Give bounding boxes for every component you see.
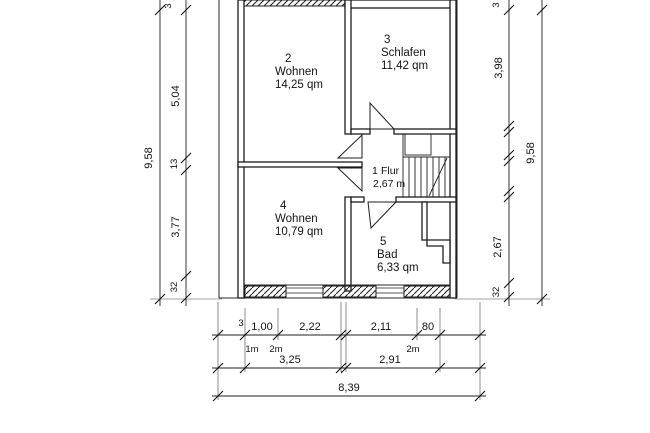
- door-swing-wohnen2: [338, 135, 362, 158]
- dim-right-segment-1: 3,98: [493, 57, 505, 78]
- exterior-wall-right: [450, 0, 456, 298]
- window-left: [286, 288, 323, 293]
- dim-left-total: 9,58: [143, 147, 155, 168]
- dim-left-segment-0: 3: [163, 3, 174, 8]
- room-area: 11,42 qm: [381, 60, 428, 72]
- wall-schlafen-flur-right: [394, 129, 456, 134]
- dim-bottom-row1-3: 2,11: [371, 321, 392, 333]
- window-right: [376, 288, 404, 293]
- wall-flur-bad-left: [351, 197, 364, 202]
- door-swing-wohnen4: [338, 168, 362, 191]
- hatched-wall-segment: [323, 286, 376, 297]
- room-area: 6,33 qm: [377, 262, 419, 274]
- dim-bottom-row2-0: 3,25: [279, 354, 300, 366]
- room-name: Bad: [377, 249, 397, 261]
- room-area: 10,79 qm: [275, 226, 323, 238]
- height-label-1m: 1m: [245, 344, 258, 355]
- dim-right-segment-2: 2,67: [492, 236, 504, 257]
- room-label-schlafen: 3 Schlafen 11,42 qm: [381, 34, 428, 72]
- dim-bottom-row1-1: 1,00: [251, 321, 272, 333]
- dimension-chain-bottom: 3 1,00 2,22 2,11 80 1m 2m 2m 3,25 2,91: [212, 302, 486, 401]
- wall-flur-bad-right: [396, 197, 456, 202]
- dimension-chain-right: 3 3,98 2,67 32 9,58: [455, 0, 550, 306]
- hatched-wall-segment: [245, 286, 286, 297]
- wall-schlafen-flur-left: [351, 129, 370, 134]
- hatched-wall-segment: [404, 286, 450, 297]
- room-label-bad: 5 Bad 6,33 qm: [377, 236, 419, 274]
- dim-left-segment-2: 13: [169, 159, 180, 170]
- stair-treads: [409, 157, 445, 197]
- room-area: 2,67 m: [373, 178, 405, 190]
- dim-left-segment-4: 32: [169, 282, 180, 293]
- room-area: 14,25 qm: [275, 79, 323, 91]
- room-number: 3: [384, 34, 390, 46]
- dim-bottom-total: 8,39: [338, 382, 359, 394]
- room-name: Wohnen: [275, 66, 318, 78]
- wall-wohnen2-schlafen: [345, 0, 351, 134]
- dim-right-segment-0: 3: [491, 2, 502, 7]
- room-number: 2: [285, 53, 291, 65]
- room-label-wohnen2: 2 Wohnen 14,25 qm: [275, 53, 323, 91]
- dim-left-segment-1: 5,04: [170, 85, 182, 106]
- room-label-wohnen4: 4 Wohnen 10,79 qm: [275, 200, 323, 238]
- wall-bad-left: [345, 197, 351, 291]
- stair-landing: [405, 134, 431, 155]
- top-wall-hatched: [244, 0, 345, 6]
- room-name: Wohnen: [275, 213, 318, 225]
- dim-left-segment-3: 3,77: [170, 216, 182, 237]
- dimension-chain-left: 9,58 3 5,04 13 3,77 32: [143, 0, 222, 306]
- floor-plan-drawing: 2 Wohnen 14,25 qm 3 Schlafen 11,42 qm 1 …: [0, 0, 650, 433]
- building-outline: [219, 0, 457, 298]
- room-number: 5: [380, 236, 386, 248]
- dimension-row-2: 3,25 2,91: [212, 354, 486, 373]
- dim-right-total: 9,58: [525, 142, 537, 163]
- door-swing-schlafen: [370, 103, 394, 129]
- height-label-2m: 2m: [406, 344, 419, 355]
- dim-right-segment-3: 32: [491, 287, 502, 298]
- room-name: Flur: [381, 165, 400, 177]
- top-wall: [345, 0, 456, 8]
- wall-bad-niche: [422, 202, 427, 240]
- room-label-flur: 1 Flur 2,67 m: [372, 165, 405, 190]
- dimension-row-total: 8,39: [212, 382, 486, 401]
- exterior-wall-left: [238, 0, 244, 298]
- stair-winder-line: [429, 158, 447, 196]
- room-name: Schlafen: [381, 47, 426, 59]
- dim-bottom-row1-4: 80: [422, 321, 434, 333]
- dim-bottom-row2-1: 2,91: [379, 354, 400, 366]
- room-number: 1: [372, 165, 378, 177]
- dimension-row-1: 3 1,00 2,22 2,11 80: [212, 318, 486, 340]
- wall-wohnen2-wohnen4: [238, 162, 362, 167]
- staircase: [403, 134, 450, 197]
- window-wall-bottom: [244, 285, 450, 297]
- dim-bottom-row1-2: 2,22: [299, 321, 320, 333]
- dim-bottom-row1-0: 3: [238, 318, 243, 329]
- door-swing-bad: [368, 202, 396, 228]
- chimney-block: [427, 240, 450, 263]
- room-number: 4: [280, 200, 287, 212]
